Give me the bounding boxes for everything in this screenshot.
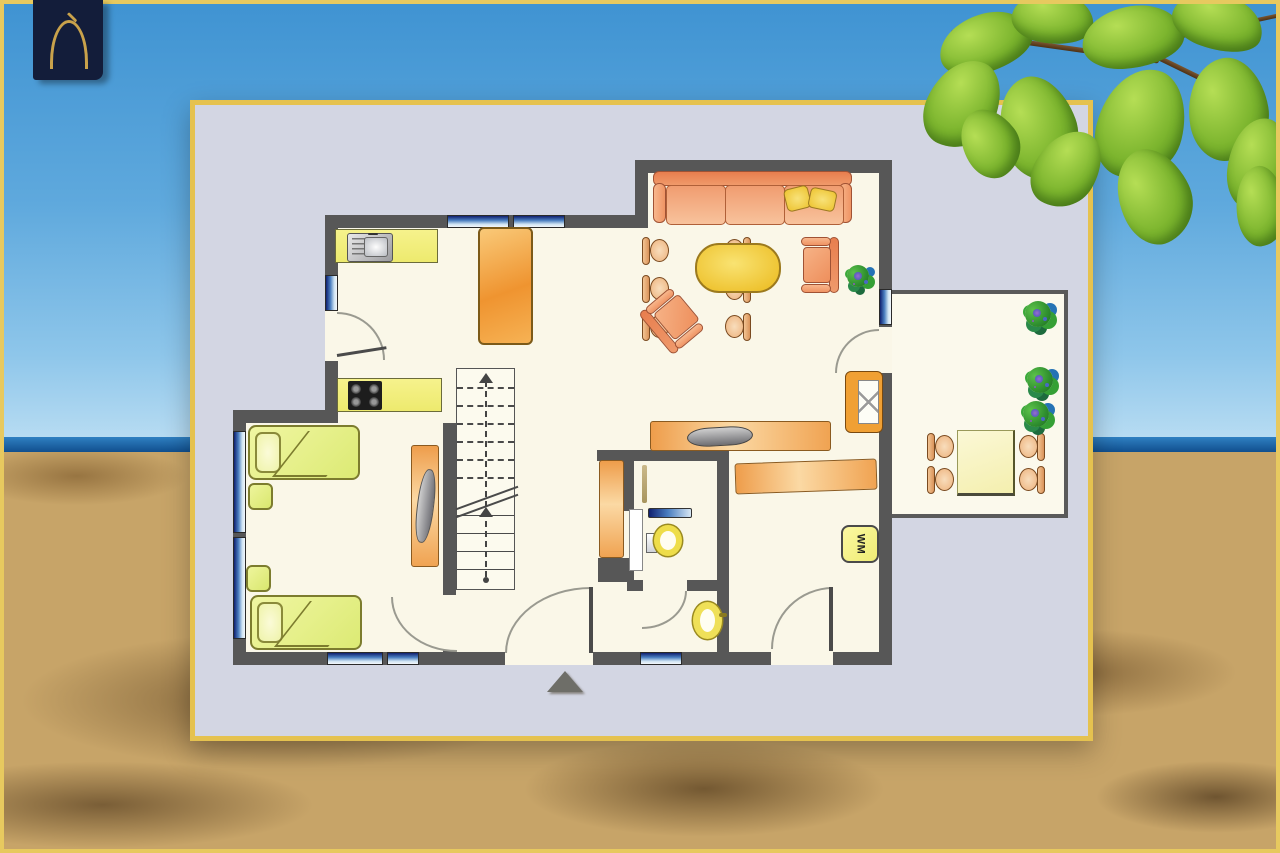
terrace-wall-right [1064, 290, 1068, 518]
floor-plan: /* reposition the 3 left dining chairs (… [195, 105, 1088, 736]
terrace-plant-icon [1023, 401, 1049, 427]
terrace-chair-icon [927, 465, 953, 495]
stove-cooktop-icon [348, 381, 382, 410]
armchair-seat [803, 247, 831, 283]
burner [369, 397, 379, 407]
fireplace-hearth [858, 380, 879, 424]
terrace-chair-icon [927, 432, 953, 462]
mirror-icon [642, 465, 647, 503]
armchair-arm [801, 237, 831, 246]
washing-machine-label: WM [854, 534, 866, 555]
armchair-arm [801, 284, 831, 293]
chair-icon [725, 312, 751, 342]
bed-fold-line [274, 601, 364, 647]
kitchen-sink-icon [347, 233, 393, 262]
bed-pillow [257, 602, 283, 643]
sofa-cushion [666, 185, 726, 225]
terrace-wall-bottom [892, 514, 1068, 518]
stair-start-dot [483, 577, 489, 583]
beach-floorplan-page: { "logo": { "icon": "pointed-arch-house-… [0, 0, 1280, 853]
radiator-icon [599, 460, 624, 558]
sofa-backrest [653, 171, 852, 186]
window-icon [640, 652, 682, 665]
window-icon [233, 431, 246, 533]
company-logo [33, 0, 103, 80]
dining-table-icon [478, 227, 533, 345]
toilet-icon [654, 525, 682, 556]
terrace-wall-top [892, 290, 1068, 294]
wall-segment [233, 410, 338, 423]
terrace-chair-icon [1019, 432, 1045, 462]
utility-sideboard-icon [735, 459, 878, 495]
chair-icon [642, 236, 668, 266]
front-door-opening [505, 652, 593, 665]
nightstand-icon [248, 483, 273, 510]
faucet-icon [368, 233, 378, 235]
armchair-icon [801, 237, 839, 293]
houseplant-icon [847, 265, 869, 287]
up-arrow-icon [479, 373, 493, 383]
coffee-table-icon [695, 243, 781, 293]
pedestal-sink-icon [693, 602, 722, 639]
bed-pillow [255, 432, 281, 473]
window-icon [325, 275, 338, 311]
sofa-cushion [725, 185, 785, 225]
window-icon [387, 652, 419, 665]
washbasin-icon [648, 508, 692, 518]
wall-segment [623, 461, 634, 511]
terrace-plant-icon [1027, 367, 1053, 393]
staircase-icon [456, 368, 515, 590]
wall-segment [717, 461, 729, 665]
door-leaf [829, 587, 833, 651]
door-leaf [589, 587, 593, 653]
wall-segment [635, 160, 648, 228]
terrace-plant-icon [1025, 301, 1051, 327]
stair-direction-line [485, 381, 487, 577]
bed-fold-line [272, 431, 362, 477]
bed-icon [250, 595, 362, 650]
floor-plan-panel: /* reposition the 3 left dining chairs (… [190, 100, 1093, 741]
up-arrow-icon [479, 507, 493, 517]
sink-basin [364, 237, 388, 257]
kitchen-sink-counter [335, 229, 438, 263]
bed-icon [248, 425, 360, 480]
window-icon [233, 537, 246, 639]
bathroom-door-leaf [629, 509, 643, 571]
terrace-table-icon [957, 430, 1015, 496]
fireplace-icon [845, 371, 883, 433]
washing-machine-icon: WM [841, 525, 879, 563]
window-icon [879, 289, 892, 325]
burner [369, 384, 379, 394]
window-icon [327, 652, 383, 665]
terrace-chair-icon [1019, 465, 1045, 495]
stove-counter [337, 378, 442, 412]
sofa-armrest [653, 183, 666, 223]
nightstand-icon [246, 565, 271, 592]
burner [351, 384, 361, 394]
utility-door-opening [771, 652, 833, 665]
sofa-icon [653, 171, 852, 225]
burner [351, 397, 361, 407]
pointed-arch-house-icon [50, 20, 88, 69]
wall-segment [627, 580, 643, 591]
terrace-door-opening [879, 327, 892, 373]
entrance-arrow-icon [547, 671, 583, 692]
